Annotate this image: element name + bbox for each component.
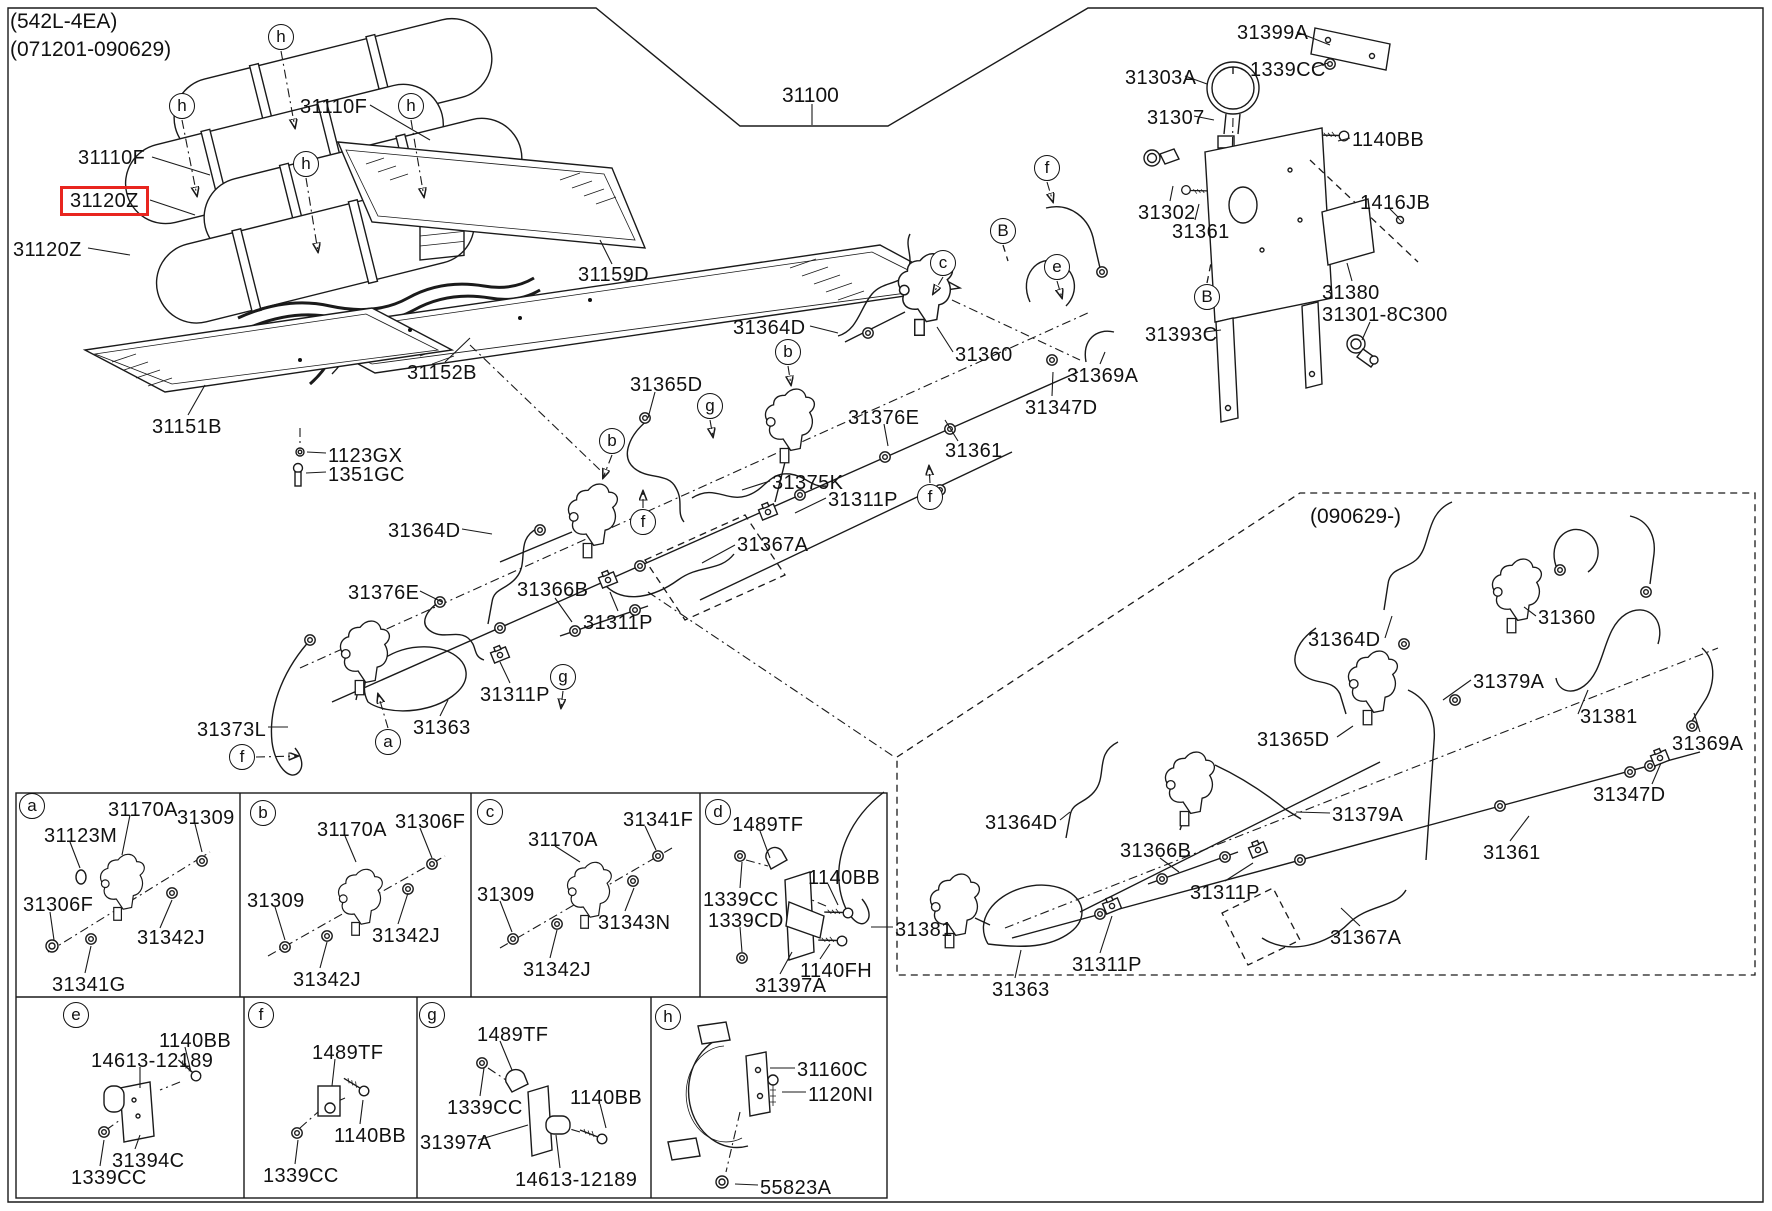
dashed-section-title: (090629-) [1310,505,1401,528]
panel-tag-d: d [705,799,731,825]
part-label-1339CC[interactable]: 1339CC [263,1166,339,1186]
panel-tag-f: f [248,1002,274,1028]
part-label-31361[interactable]: 31361 [945,441,1003,461]
part-label-1351GC[interactable]: 1351GC [328,465,405,485]
part-label-31306F[interactable]: 31306F [395,812,465,832]
part-label-1489TF[interactable]: 1489TF [312,1043,383,1063]
part-label-31369A[interactable]: 31369A [1672,734,1743,754]
part-label-31364D[interactable]: 31364D [733,318,805,338]
part-label-31170A[interactable]: 31170A [528,830,598,850]
callout-a: a [375,729,401,755]
part-label-1489TF[interactable]: 1489TF [732,815,803,835]
part-label-31160C[interactable]: 31160C [797,1060,868,1080]
part-label-31376E[interactable]: 31376E [848,408,919,428]
part-label-31342J[interactable]: 31342J [293,970,361,990]
part-label-31360[interactable]: 31360 [1538,608,1596,628]
part-label-1339CC[interactable]: 1339CC [1250,60,1326,80]
part-label-31170A[interactable]: 31170A [108,800,178,820]
part-label-31341G[interactable]: 31341G [52,975,126,995]
part-label-1489TF[interactable]: 1489TF [477,1025,548,1045]
part-label-31152B[interactable]: 31152B [407,363,477,383]
part-label-31110F[interactable]: 31110F [300,97,367,117]
callout-h: h [398,93,424,119]
part-label-31363[interactable]: 31363 [413,718,471,738]
part-label-31120Z[interactable]: 31120Z [13,240,82,260]
panel-tag-e: e [63,1002,89,1028]
part-label-31159D[interactable]: 31159D [578,265,649,285]
callout-f: f [630,509,656,535]
part-label-31307[interactable]: 31307 [1147,108,1205,128]
part-label-31342J[interactable]: 31342J [372,926,440,946]
part-label-31397A[interactable]: 31397A [420,1133,491,1153]
part-label-31309[interactable]: 31309 [477,885,535,905]
callout-h: h [169,93,195,119]
part-label-31397A[interactable]: 31397A [755,976,826,996]
part-label-31151B[interactable]: 31151B [152,417,222,437]
part-label-31347D[interactable]: 31347D [1593,785,1665,805]
callout-b: b [775,339,801,365]
part-label-31369A[interactable]: 31369A [1067,366,1138,386]
callout-f: f [1034,155,1060,181]
part-label-31342J[interactable]: 31342J [137,928,205,948]
part-label-31309[interactable]: 31309 [177,808,235,828]
callout-g: g [697,393,723,419]
part-label-31311P[interactable]: 31311P [480,685,550,705]
callout-B: B [990,218,1016,244]
part-label-31341F[interactable]: 31341F [623,810,693,830]
callout-e: e [1044,254,1070,280]
part-label-31367A[interactable]: 31367A [1330,928,1401,948]
part-label-1140BB[interactable]: 1140BB [570,1088,642,1108]
part-label-1140BB[interactable]: 1140BB [334,1126,406,1146]
part-label-31342J[interactable]: 31342J [523,960,591,980]
part-label-31170A[interactable]: 31170A [317,820,387,840]
part-label-31120Z[interactable]: 31120Z [60,186,149,216]
part-label-31360[interactable]: 31360 [955,345,1013,365]
part-label-31379A[interactable]: 31379A [1332,805,1403,825]
part-label-31301-8C300[interactable]: 31301-8C300 [1322,305,1448,325]
callout-g: g [550,664,576,690]
part-label-1140BB[interactable]: 1140BB [159,1031,231,1051]
part-label-1123GX[interactable]: 1123GX [328,446,402,466]
part-label-1140BB[interactable]: 1140BB [1352,130,1424,150]
part-label-31379A[interactable]: 31379A [1473,672,1544,692]
part-label-31347D[interactable]: 31347D [1025,398,1097,418]
part-label-1339CD[interactable]: 1339CD [708,911,784,931]
part-label-1140BB[interactable]: 1140BB [808,868,880,888]
config-header: (542L-4EA) [10,10,117,33]
part-label-31365D[interactable]: 31365D [630,375,702,395]
callout-h: h [293,151,319,177]
part-label-31367A[interactable]: 31367A [737,535,808,555]
part-label-31302[interactable]: 31302 [1138,203,1196,223]
part-label-31309[interactable]: 31309 [247,891,305,911]
part-label-31361[interactable]: 31361 [1172,222,1230,242]
part-label-31364D[interactable]: 31364D [388,521,460,541]
part-label-31311P[interactable]: 31311P [828,490,898,510]
panel-tag-b: b [250,800,276,826]
part-label-31381[interactable]: 31381 [1580,707,1638,727]
callout-b: b [599,428,625,454]
callout-c: c [930,250,956,276]
part-label-31363[interactable]: 31363 [992,980,1050,1000]
panel-tag-c: c [477,799,503,825]
part-label-31364D[interactable]: 31364D [985,813,1057,833]
assembly-number[interactable]: 31100 [782,84,839,107]
part-label-31381[interactable]: 31381 [895,920,953,940]
callout-f: f [229,744,255,770]
part-label-1339CC[interactable]: 1339CC [71,1168,147,1188]
part-label-31366B[interactable]: 31366B [1120,841,1191,861]
part-label-31306F[interactable]: 31306F [23,895,93,915]
part-label-55823A[interactable]: 55823A [760,1178,831,1198]
part-label-1120NI[interactable]: 1120NI [808,1085,873,1105]
part-label-31376E[interactable]: 31376E [348,583,419,603]
part-label-14613-12189[interactable]: 14613-12189 [91,1051,213,1071]
part-label-14613-12189[interactable]: 14613-12189 [515,1170,637,1190]
part-label-31311P[interactable]: 31311P [1190,883,1260,903]
part-label-31311P[interactable]: 31311P [583,613,653,633]
panel-tag-a: a [19,793,45,819]
part-label-1416JB[interactable]: 1416JB [1360,193,1430,213]
part-label-31303A[interactable]: 31303A [1125,68,1196,88]
callout-f: f [917,484,943,510]
part-label-31311P[interactable]: 31311P [1072,955,1142,975]
parts-diagram-canvas: (542L-4EA) (071201-090629) 31100 (090629… [0,0,1772,1211]
part-label-31110F[interactable]: 31110F [78,148,145,168]
part-label-31343N[interactable]: 31343N [598,913,670,933]
part-label-31380[interactable]: 31380 [1322,283,1380,303]
part-label-1339CC[interactable]: 1339CC [447,1098,523,1118]
diagram-art [0,0,1772,1211]
date-range-header: (071201-090629) [10,38,171,61]
callout-B: B [1194,284,1220,310]
panel-tag-h: h [655,1004,681,1030]
part-label-31361[interactable]: 31361 [1483,843,1541,863]
part-label-31399A[interactable]: 31399A [1237,23,1308,43]
part-label-31366B[interactable]: 31366B [517,580,588,600]
part-label-31393C[interactable]: 31393C [1145,325,1217,345]
part-label-31373L[interactable]: 31373L [197,720,266,740]
part-label-31364D[interactable]: 31364D [1308,630,1380,650]
part-label-31365D[interactable]: 31365D [1257,730,1329,750]
panel-tag-g: g [419,1002,445,1028]
part-label-31123M[interactable]: 31123M [44,826,117,846]
part-label-1339CC[interactable]: 1339CC [703,890,779,910]
callout-h: h [268,24,294,50]
